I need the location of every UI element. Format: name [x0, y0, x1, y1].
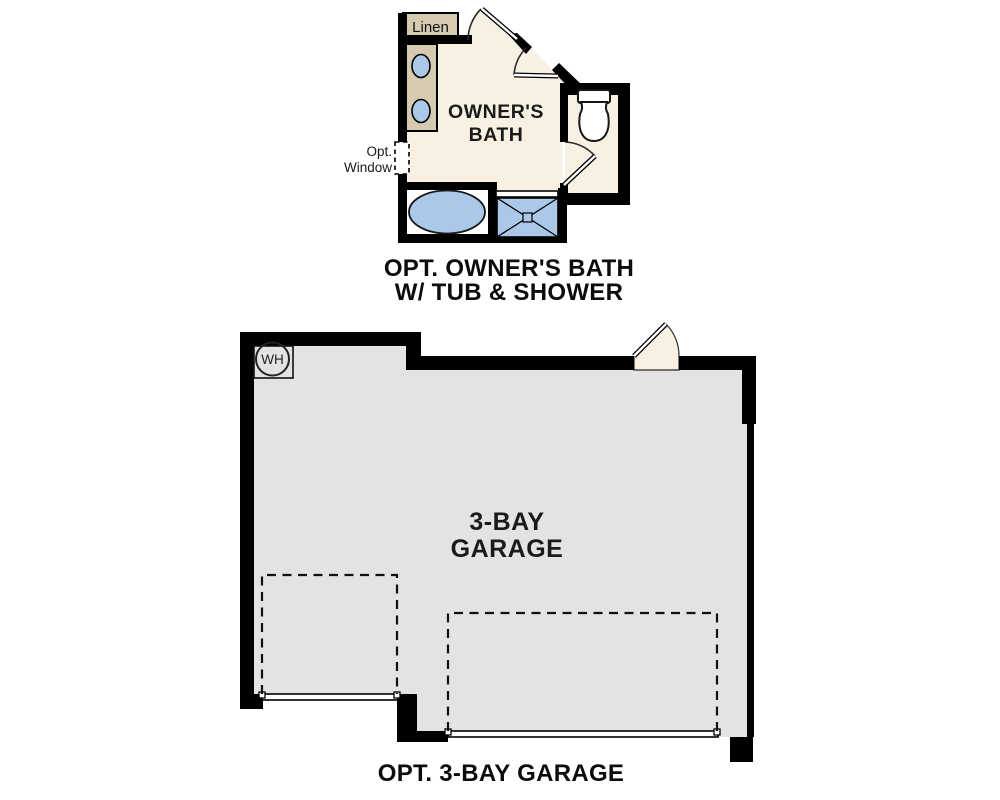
- entry-door1-swing-area: [468, 9, 517, 44]
- bath-caption-line1: OPT. OWNER'S BATH: [384, 255, 634, 282]
- bath-caption-line2: W/ TUB & SHOWER: [395, 279, 623, 306]
- garage-bay1-door: [259, 692, 400, 700]
- owners-bath-label-line2: BATH: [469, 124, 524, 146]
- tub: [409, 191, 485, 234]
- opt-window: [395, 142, 409, 174]
- water-heater-label: WH: [261, 352, 284, 367]
- garage-plan: WH 3-BAY GARAGE OPT. 3-BAY GARAGE: [240, 324, 756, 787]
- garage-label-line1: 3-BAY: [469, 508, 544, 536]
- floor-plan-page: OWNER'S BATH Linen Opt. Window OPT. OWNE…: [0, 0, 1000, 800]
- sink-bottom: [412, 100, 430, 123]
- garage-label-line2: GARAGE: [451, 535, 564, 563]
- garage-bay2-door: [445, 729, 720, 737]
- opt-window-label-line2: Window: [344, 160, 392, 175]
- owners-bath-plan: OWNER'S BATH Linen Opt. Window OPT. OWNE…: [344, 9, 634, 306]
- shower: [496, 191, 558, 237]
- toilet: [578, 90, 610, 141]
- linen-label: Linen: [412, 19, 449, 36]
- opt-window-label-line1: Opt.: [366, 144, 392, 159]
- shower-drain: [523, 213, 532, 222]
- sink-top: [412, 55, 430, 78]
- garage-caption: OPT. 3-BAY GARAGE: [378, 760, 625, 787]
- shower-door: [496, 191, 558, 197]
- owners-bath-label-line1: OWNER'S: [448, 101, 544, 123]
- floor-plan-drawing: OWNER'S BATH Linen Opt. Window OPT. OWNE…: [0, 0, 1000, 800]
